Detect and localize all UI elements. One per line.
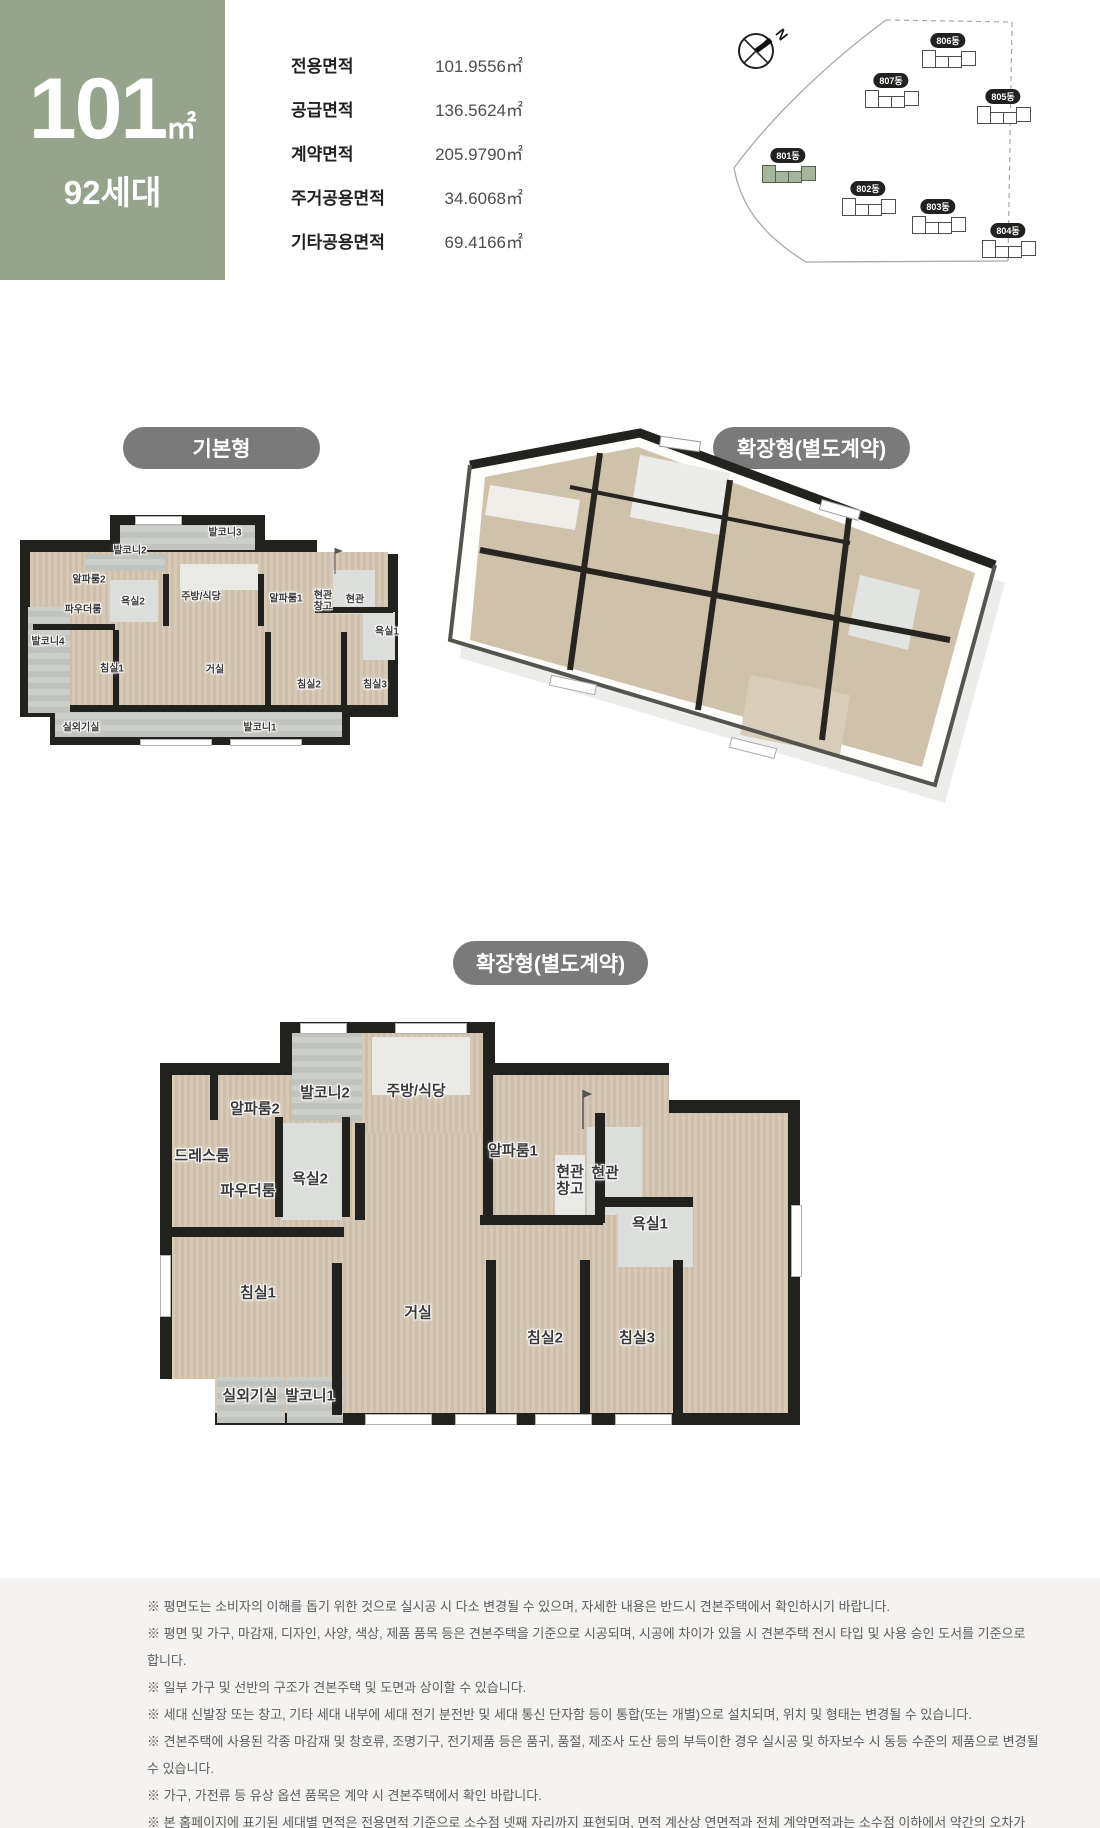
room-label: 발코니3 [208, 524, 241, 539]
plan-wall [163, 574, 169, 626]
building-badge: 801동 [770, 148, 805, 163]
room-label: 알파룸2 [230, 1098, 280, 1119]
window [615, 1414, 672, 1425]
compass-north-label: N [772, 25, 791, 43]
area-label: 주거공용면적 [291, 184, 385, 209]
room-label: 주방/식당 [181, 588, 221, 603]
room-label: 발코니1 [285, 1385, 335, 1406]
room-label: 실외기실 [63, 719, 100, 734]
building-unit [922, 50, 936, 68]
area-label: 전용면적 [291, 52, 354, 77]
area-table-row: 기타공용면적 69.4166㎡ [291, 218, 523, 262]
isometric-floorplan-graphic [430, 425, 1015, 810]
room-label: 알파룸2 [72, 571, 105, 586]
room-label: 발코니2 [113, 542, 146, 557]
plan-wall [172, 1227, 344, 1237]
unit-area-number: 101㎡ [29, 66, 197, 152]
building-badge: 803동 [920, 199, 955, 214]
area-table-row: 주거공용면적 34.6068㎡ [291, 174, 523, 218]
building-unit [1003, 112, 1017, 124]
building-unit [938, 222, 952, 234]
building-badge: 805동 [985, 89, 1020, 104]
unit-type-box: 101㎡ 92세대 [0, 0, 225, 280]
plan-wall [210, 1075, 218, 1120]
area-label: 기타공용면적 [291, 228, 385, 253]
plan-wall [595, 1197, 693, 1207]
building-unit [990, 112, 1004, 124]
room-label: 욕실1 [375, 623, 399, 638]
building-unit [1016, 107, 1031, 122]
building-badge: 807동 [873, 73, 908, 88]
kitchen-counter [180, 564, 258, 590]
plan-cutout [669, 1063, 800, 1105]
plan-wall [673, 1260, 683, 1415]
area-table: 전용면적 101.9556㎡ 공급면적 136.5624㎡ 계약면적 205.9… [291, 42, 523, 262]
extended-plan-badge: 확장형(별도계약) [453, 941, 648, 985]
site-plan: N 806동 807동 [620, 5, 1100, 270]
window [230, 739, 302, 746]
room-label: 침실3 [619, 1327, 655, 1348]
building-unit [1021, 241, 1036, 256]
plan-wall [33, 624, 115, 630]
north-flag-icon [578, 1087, 594, 1129]
room-label: 알파룸1 [488, 1140, 538, 1161]
room-label: 침실1 [240, 1282, 276, 1303]
page: 101㎡ 92세대 전용면적 101.9556㎡ 공급면적 136.5624㎡ … [0, 0, 1100, 1828]
disclaimer-lines: ※ 평면도는 소비자의 이해를 돕기 위한 것으로 실시공 시 다소 변경될 수… [147, 1593, 1040, 1828]
basic-type-badge: 기본형 [123, 427, 320, 469]
building-unit [935, 56, 949, 68]
area-label: 공급면적 [291, 96, 354, 121]
window [395, 1023, 467, 1034]
plan-wall [265, 632, 271, 708]
room-label: 창고 [314, 598, 332, 613]
building-unit [868, 204, 882, 216]
building-badge: 804동 [990, 223, 1025, 238]
room-label: 파우더룸 [220, 1180, 275, 1201]
building-cluster: 805동 [975, 89, 1031, 127]
plan-wall [341, 632, 347, 708]
room-label: 침실1 [100, 660, 124, 675]
building-badge: 806동 [930, 33, 965, 48]
plan-wall [355, 1123, 365, 1220]
window [160, 1255, 171, 1317]
building-unit [1008, 246, 1022, 258]
building-badge: 802동 [850, 181, 885, 196]
room-label: 욕실1 [632, 1213, 668, 1234]
building-unit [951, 217, 966, 232]
window [535, 1414, 592, 1425]
plan-wall [480, 1215, 603, 1225]
households-count: 92세대 [64, 166, 161, 214]
extended-type-3d-view [430, 425, 1015, 810]
north-flag-icon [331, 546, 345, 574]
disclaimer-line: ※ 일부 가구 및 선반의 구조가 견본주택 및 도면과 상이할 수 있습니다. [147, 1674, 1040, 1701]
area-value: 69.4166㎡ [445, 228, 523, 253]
building-unit [948, 56, 962, 68]
area-value: 205.9790㎡ [435, 140, 523, 165]
building-cluster: 802동 [840, 181, 896, 219]
window [455, 1414, 517, 1425]
building-unit [865, 90, 879, 108]
building-unit [982, 240, 996, 258]
disclaimer-line: ※ 평면도는 소비자의 이해를 돕기 위한 것으로 실시공 시 다소 변경될 수… [147, 1593, 1040, 1620]
building-unit [891, 96, 905, 108]
disclaimer-line: ※ 세대 신발장 또는 창고, 기타 세대 내부에 세대 전기 분전반 및 세대… [147, 1701, 1040, 1728]
room-label: 발코니1 [243, 719, 276, 734]
building-unit [995, 246, 1009, 258]
room-label: 침실3 [363, 676, 387, 691]
building-cluster: 807동 [863, 73, 919, 111]
area-table-row: 계약면적 205.9790㎡ [291, 130, 523, 174]
window [140, 739, 212, 746]
room-label: 주방/식당 [386, 1080, 445, 1101]
area-table-row: 전용면적 101.9556㎡ [291, 42, 523, 86]
room-label: 침실2 [527, 1327, 563, 1348]
room-label: 침실2 [297, 676, 321, 691]
compass-icon: N [730, 21, 800, 83]
building-unit [881, 199, 896, 214]
building-unit [788, 171, 802, 183]
extended-floor-plan: 발코니2주방/식당알파룸2드레스룸욕실2파우더룸알파룸1현관창고현관욕실1침실1… [150, 1005, 805, 1510]
building-cluster: 803동 [910, 199, 966, 237]
disclaimer-line: ※ 견본주택에 사용된 각종 마감재 및 창호류, 조명기구, 전기제품 등은 … [147, 1728, 1040, 1782]
room-label: 현관 [346, 591, 364, 606]
balcony-area [85, 554, 165, 571]
building-cluster: 801동 [760, 148, 816, 186]
building-unit [961, 51, 976, 66]
room-label: 알파룸1 [269, 590, 302, 605]
room-label: 창고 [556, 1178, 584, 1199]
building-unit [904, 91, 919, 106]
room-label: 발코니4 [31, 633, 64, 648]
building-unit [878, 96, 892, 108]
unit-area-value: 101 [29, 61, 167, 157]
disclaimer-line: ※ 가구, 가전류 등 유상 옵션 품목은 계약 시 견본주택에서 확인 바랍니… [147, 1782, 1040, 1809]
area-value: 34.6068㎡ [445, 184, 523, 209]
building-unit [977, 106, 991, 124]
building-cluster: 804동 [980, 223, 1036, 261]
plan-wall [258, 574, 264, 626]
unit-area-unit: ㎡ [166, 112, 196, 145]
balcony-area [292, 1033, 362, 1121]
plan-wall [580, 1260, 590, 1415]
basic-floor-plan: 발코니3발코니2알파룸2주방/식당욕실2파우더룸알파룸1현관창고현관욕실1발코니… [15, 512, 400, 752]
room-label: 욕실2 [292, 1168, 328, 1189]
building-unit [925, 222, 939, 234]
area-value: 136.5624㎡ [435, 96, 523, 121]
room-label: 거실 [206, 661, 224, 676]
area-label: 계약면적 [291, 140, 354, 165]
building-cluster: 806동 [920, 33, 976, 71]
building-unit [762, 165, 776, 183]
window [135, 516, 182, 525]
room-label: 현관 [591, 1162, 619, 1183]
building-unit [801, 166, 816, 181]
balcony-area [28, 607, 70, 713]
room-label: 실외기실 [222, 1385, 277, 1406]
building-unit [912, 216, 926, 234]
disclaimer-line: ※ 본 홈페이지에 표기된 세대별 면적은 전용면적 기준으로 소수점 넷째 자… [147, 1809, 1040, 1828]
building-unit [775, 171, 789, 183]
plan-cutout [160, 1379, 215, 1425]
window [791, 1205, 802, 1277]
room-label: 드레스룸 [174, 1145, 229, 1166]
plan-wall [669, 1100, 800, 1113]
window [300, 1023, 347, 1034]
plan-wall [486, 1260, 496, 1415]
room-label: 거실 [404, 1302, 432, 1323]
building-unit [842, 198, 856, 216]
plan-wall [275, 1117, 283, 1217]
window [365, 1414, 432, 1425]
area-table-row: 공급면적 136.5624㎡ [291, 86, 523, 130]
plan-wall [342, 1117, 350, 1217]
area-value: 101.9556㎡ [435, 52, 523, 77]
room-label: 발코니2 [300, 1082, 350, 1103]
footer-disclaimer: ※ 평면도는 소비자의 이해를 돕기 위한 것으로 실시공 시 다소 변경될 수… [0, 1578, 1100, 1828]
room-label: 욕실2 [121, 593, 145, 608]
room-label: 파우더룸 [65, 601, 102, 616]
building-unit [855, 204, 869, 216]
disclaimer-line: ※ 평면 및 가구, 마감재, 디자인, 사양, 색상, 제품 품목 등은 견본… [147, 1620, 1040, 1674]
